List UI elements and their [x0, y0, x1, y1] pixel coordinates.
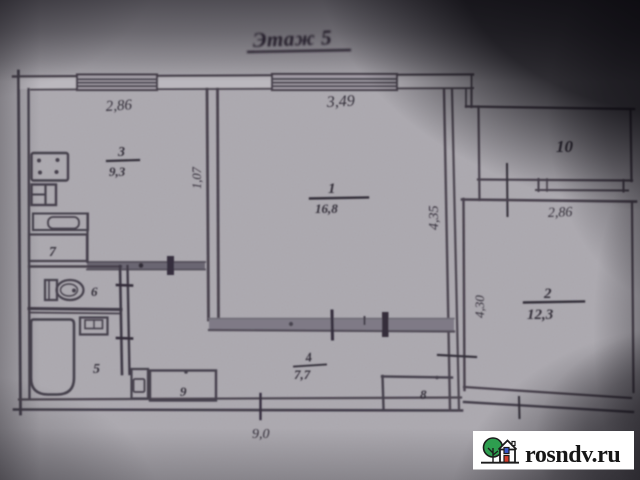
svg-text:rosndv.ru: rosndv.ru: [525, 442, 620, 468]
